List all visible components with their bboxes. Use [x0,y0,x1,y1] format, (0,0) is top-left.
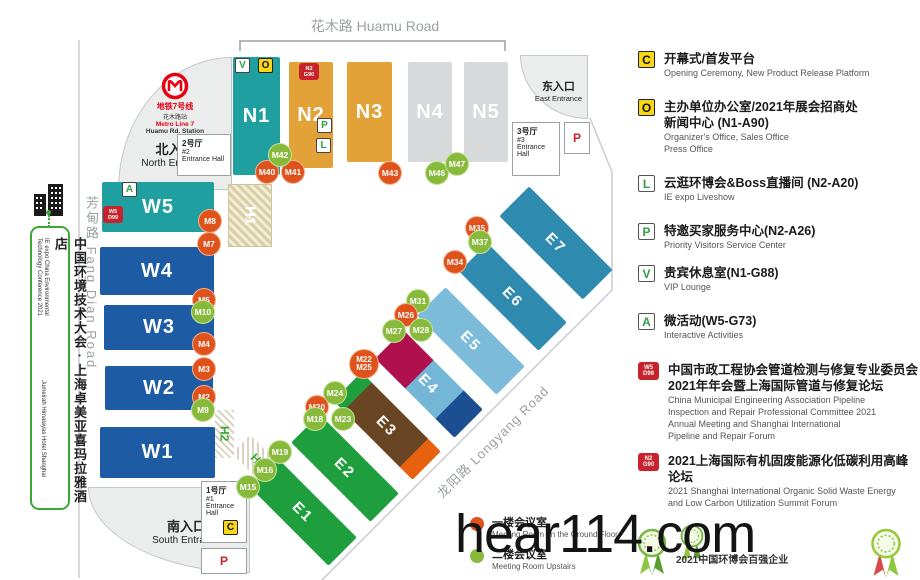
forum-n2-g90-marker: N2G90 [299,63,319,80]
meeting-room-marker-m22-m25: M22M25 [349,349,379,379]
hall-W2-label: W2 [143,377,175,400]
hall-E4-label: E4 [415,370,443,398]
hall1-no: #1 [206,496,242,503]
legend-text: 开幕式/首发平台Opening Ceremony, New Product Re… [664,51,869,79]
legend-item-l: L云逛环博会&Boss直播间 (N2-A20)IE expo Liveshow [638,175,858,203]
meeting-room-marker-m37: M37 [468,230,492,254]
legend-title-line: 开幕式/首发平台 [664,51,869,67]
hall-N4: N4 [408,62,452,162]
meeting-room-marker-m7: M7 [197,232,221,256]
legend-sub-line: Annual Meeting and Shanghai Internationa… [668,418,918,430]
east-entrance-cn: 东入口 [535,78,582,94]
hall-H1: H1 [228,184,272,247]
meeting-room-marker-m15: M15 [236,475,260,499]
parking-south: P [201,548,247,574]
hall-E7-label: E7 [542,229,570,257]
legend-title-line: 新闻中心 (N1-A90) [664,115,858,131]
legend-title-line: 主办单位办公室/2021年展会招商处 [664,99,858,115]
legend-text: 特邀买家服务中心(N2-A26)Priority Visitors Servic… [664,223,815,251]
legend-item-a: A微活动(W5-G73)Interactive Activities [638,313,756,341]
legend-text: 云逛环博会&Boss直播间 (N2-A20)IE expo Liveshow [664,175,858,203]
metro-line-cn: 地铁7号线 [119,101,231,112]
legend-sub-line: Press Office [664,143,858,155]
award-medal-icon-3 [860,528,912,580]
legend-icon-c: C [638,51,655,68]
liveshow-marker: L [316,138,331,153]
meeting-room-marker-m47: M47 [445,152,469,176]
legend-title-line: 特邀买家服务中心(N2-A26) [664,223,815,239]
meeting-room-marker-m27: M27 [382,319,406,343]
conference-banner: 中国环境技术大会 · 上海卓美亚喜玛拉雅酒店 IE expo China Env… [30,226,70,510]
watermark-text: hear114.com [455,503,755,565]
conference-title-cn: 中国环境技术大会 · 上海卓美亚喜玛拉雅酒店 [51,237,89,505]
legend-text: 中国市政工程协会管道检测与修复专业委员会2021年年会暨上海国际管道与修复论坛C… [668,362,918,442]
legend-sub-line: 2021 Shanghai International Organic Soli… [668,485,920,497]
meeting-room-marker-m4: M4 [192,332,216,356]
legend-title-line: 贵宾休息室(N1-G88) [664,265,779,281]
legend-title-line: 微活动(W5-G73) [664,313,756,329]
legend-sub-line: IE expo Liveshow [664,191,858,203]
legend-icon-o: O [638,99,655,116]
legend-item-o: O主办单位办公室/2021年展会招商处新闻中心 (N1-A90)Organize… [638,99,858,155]
meeting-room-marker-m28: M28 [409,318,433,342]
legend-item-n2: N2G902021上海国际有机固废能源化低碳利用高峰论坛2021 Shangha… [638,453,920,509]
hall-W3-label: W3 [143,316,175,339]
legend-item-v: V贵宾休息室(N1-G88)VIP Lounge [638,265,779,293]
metro-logo-icon [161,72,189,100]
legend-text: 2021上海国际有机固废能源化低碳利用高峰论坛2021 Shanghai Int… [668,453,920,509]
legend-sub-line: Priority Visitors Service Center [664,239,815,251]
parking-east-label: P [573,131,581,145]
metro-station-cn: 花木路站 [119,112,231,121]
meeting-room-marker-m23: M23 [331,407,355,431]
conference-title-en-2: Technology Conference 2021 [36,238,42,316]
legend-sub-line: Opening Ceremony, New Product Release Pl… [664,67,869,79]
hall-N4-label: N4 [416,101,444,124]
legend-sub-line: VIP Lounge [664,281,779,293]
forum-w5-d99-marker: W5D99 [103,206,123,223]
huamu-road-label: 花木路 Huamu Road [270,16,480,36]
expo-floor-map: 花木路 Huamu Road 芳甸路 Fang Dian Road 龙阳路 Lo… [0,0,920,580]
legend-title-line: 2021上海国际有机固废能源化低碳利用高峰论坛 [668,453,920,485]
legend-icon-v: V [638,265,655,282]
legend-title-line: 2021年年会暨上海国际管道与修复论坛 [668,378,918,394]
hall-E3-label: E3 [373,412,401,440]
hall3-cn: 3号厅 [517,126,555,137]
legend-title-line: 中国市政工程协会管道检测与修复专业委员会 [668,362,918,378]
legend-icon-a: A [638,313,655,330]
legend-panel: C开幕式/首发平台Opening Ceremony, New Product R… [638,0,920,500]
meeting-room-marker-m18: M18 [303,407,327,431]
legend-sub-line: Organizer's Office, Sales Office [664,131,858,143]
hall-E1-label: E1 [289,498,317,526]
hall-H2: H2 [215,410,234,458]
meeting-room-marker-m42: M42 [268,143,292,167]
parking-south-label: P [220,554,228,568]
legend-title-line: 云逛环博会&Boss直播间 (N2-A20) [664,175,858,191]
vip-lounge-marker: V [235,58,250,73]
hotel-name-en: Jumeirah Himalayas Hotel Shanghai [40,380,46,477]
legend-item-w5: W5D99中国市政工程协会管道检测与修复专业委员会2021年年会暨上海国际管道与… [638,362,918,442]
east-entrance-en: East Entrance [535,94,582,103]
conference-title-en-1: IE expo China Environmental [43,238,49,316]
entrance-hall-3: 3号厅 #3 Entrance Hall [512,122,560,176]
hall-N3: N3 [347,62,392,162]
hall-W1-label: W1 [142,441,174,464]
meeting-room-marker-m8: M8 [198,209,222,233]
hall-N5-label: N5 [472,101,500,124]
hall2-no: #2 [182,149,226,156]
meeting-room-marker-m43: M43 [378,161,402,185]
meeting-room-marker-m3: M3 [192,357,216,381]
hall-N5: N5 [464,62,508,162]
meeting-room-marker-m10: M10 [191,300,215,324]
entrance-hall-2: 2号厅 #2 Entrance Hall [177,134,231,176]
meeting-room-marker-m34: M34 [443,250,467,274]
hall3-no: #3 [517,137,555,144]
hall-E5-label: E5 [457,327,485,355]
legend-icon-w5: W5D99 [638,362,659,380]
organizer-office-marker: O [258,58,273,73]
legend-icon-n2: N2G90 [638,453,659,471]
legend-sub-line: Interactive Activities [664,329,756,341]
hall2-cn: 2号厅 [182,138,226,149]
hall-N3-label: N3 [356,101,384,124]
legend-item-p: P特邀买家服务中心(N2-A26)Priority Visitors Servi… [638,223,815,251]
legend-sub-line: Pipeline and Repair Forum [668,430,918,442]
priority-visitors-marker: P [317,118,332,133]
hall-N1-label: N1 [243,105,271,128]
legend-sub-line: China Municipal Engineering Association … [668,394,918,406]
hall-W4-label: W4 [141,260,173,283]
legend-icon-p: P [638,223,655,240]
meeting-room-marker-m9: M9 [191,398,215,422]
legend-icon-l: L [638,175,655,192]
legend-text: 主办单位办公室/2021年展会招商处新闻中心 (N1-A90)Organizer… [664,99,858,155]
opening-ceremony-marker: C [223,520,238,535]
hall-E2-label: E2 [331,454,359,482]
legend-item-c: C开幕式/首发平台Opening Ceremony, New Product R… [638,51,869,79]
hall-H2-label: H2 [218,426,232,441]
legend-text: 贵宾休息室(N1-G88)VIP Lounge [664,265,779,293]
metro-line-en: Metro Line 7 [119,121,231,128]
parking-east: P [564,122,590,154]
hall-W4: W4 [100,247,214,295]
hall-W5-label: W5 [142,196,174,219]
hall2-en: Entrance Hall [182,156,226,163]
interactive-activities-marker: A [122,182,137,197]
legend-text: 微活动(W5-G73)Interactive Activities [664,313,756,341]
hall3-en: Entrance Hall [517,144,555,158]
hall1-en: Entrance Hall [206,503,232,517]
hall-W1: W1 [100,427,215,478]
hall-E6-label: E6 [499,283,527,311]
legend-sub-line: Inspection and Repair Professional Commi… [668,406,918,418]
hall-H1-label: H1 [242,206,259,225]
